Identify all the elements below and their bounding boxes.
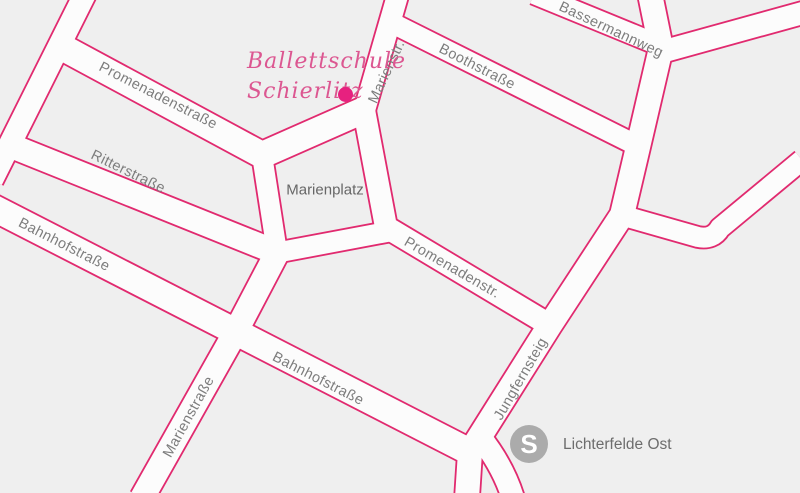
ballettschule-marker: Ballettschule Schierlitz bbox=[247, 47, 406, 107]
marienplatz-south-street-fill bbox=[275, 231, 392, 253]
ballettschule-dot-icon bbox=[338, 87, 353, 102]
ballettschule-marker-line1: Ballettschule bbox=[247, 47, 406, 77]
marienplatz-label: Marienplatz bbox=[286, 182, 364, 199]
station-label: Lichterfelde Ost bbox=[563, 436, 672, 454]
street-top-right-corner-fill bbox=[654, 12, 800, 54]
ballettschule-marker-line2: Schierlitz bbox=[247, 77, 406, 107]
boothstrasse-fill bbox=[390, 22, 644, 149]
map-canvas[interactable]: PromenadenstraßeRitterstraßeBahnhofstraß… bbox=[0, 0, 800, 493]
sbahn-icon: S bbox=[510, 425, 548, 463]
promenadenstr-diagonal-fill bbox=[364, 110, 558, 330]
sbahn-icon-letter: S bbox=[520, 429, 537, 460]
